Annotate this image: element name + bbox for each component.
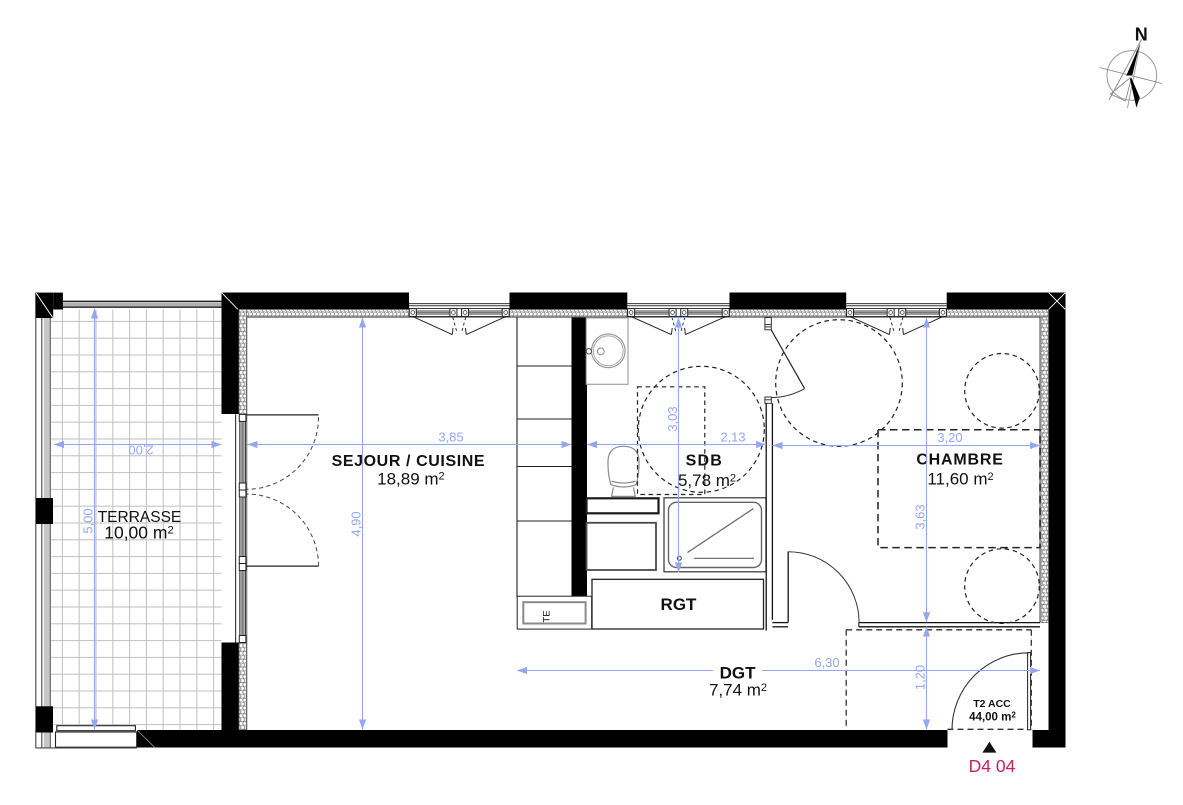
svg-text:N: N [1135,25,1148,45]
svg-text:D4 04: D4 04 [969,756,1016,776]
svg-text:7,74 m2: 7,74 m2 [709,681,767,700]
svg-text:6,30: 6,30 [814,655,839,670]
svg-text:5,00: 5,00 [81,508,96,533]
svg-text:3,03: 3,03 [665,406,680,431]
svg-text:3,85: 3,85 [438,429,463,444]
svg-text:3,63: 3,63 [913,504,928,529]
svg-text:3,20: 3,20 [937,430,962,445]
svg-text:1,20: 1,20 [913,665,928,690]
svg-text:5,78 m2: 5,78 m2 [678,471,736,490]
svg-text:SEJOUR / CUISINE: SEJOUR / CUISINE [332,453,486,470]
svg-text:CHAMBRE: CHAMBRE [916,452,1003,469]
svg-text:44,00 m2: 44,00 m2 [969,711,1016,724]
svg-text:2,00: 2,00 [128,443,153,458]
svg-text:11,60 m2: 11,60 m2 [927,470,993,489]
svg-text:18,89 m2: 18,89 m2 [377,469,445,488]
svg-text:SDB: SDB [686,452,723,469]
svg-text:RGT: RGT [661,595,698,614]
svg-text:10,00 m2: 10,00 m2 [104,523,174,543]
svg-text:4,90: 4,90 [349,511,364,536]
svg-text:2,13: 2,13 [720,430,745,445]
svg-text:TE: TE [542,610,553,622]
svg-text:T2 ACC: T2 ACC [973,698,1011,710]
